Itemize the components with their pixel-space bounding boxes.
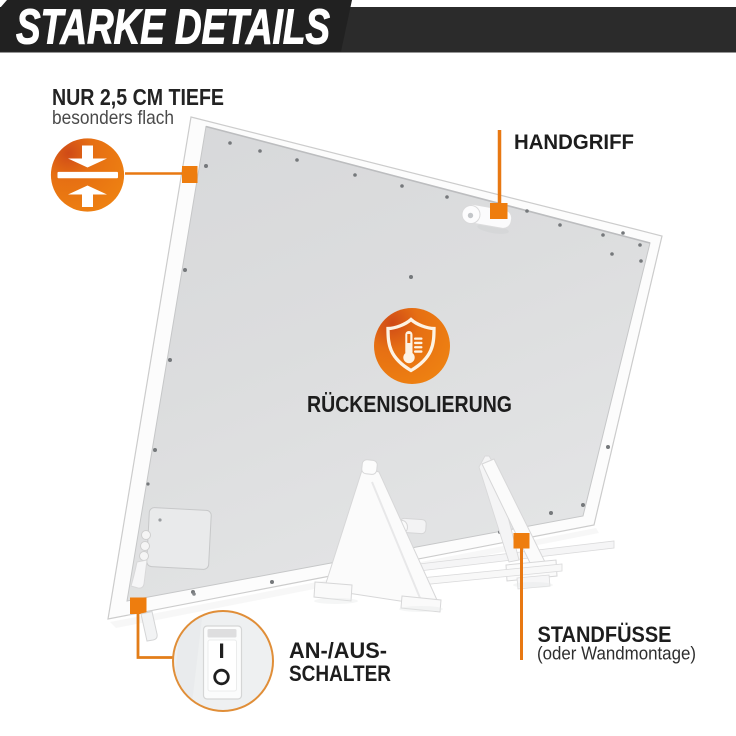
- svg-text:SCHALTER: SCHALTER: [289, 661, 391, 686]
- svg-text:AN-/AUS-: AN-/AUS-: [289, 638, 387, 663]
- svg-text:STARKE DETAILS: STARKE DETAILS: [16, 1, 330, 55]
- svg-text:besonders flach: besonders flach: [52, 107, 174, 129]
- svg-text:RÜCKENISOLIERUNG: RÜCKENISOLIERUNG: [307, 391, 512, 417]
- svg-text:HANDGRIFF: HANDGRIFF: [514, 131, 634, 154]
- svg-text:(oder Wandmontage): (oder Wandmontage): [537, 644, 696, 664]
